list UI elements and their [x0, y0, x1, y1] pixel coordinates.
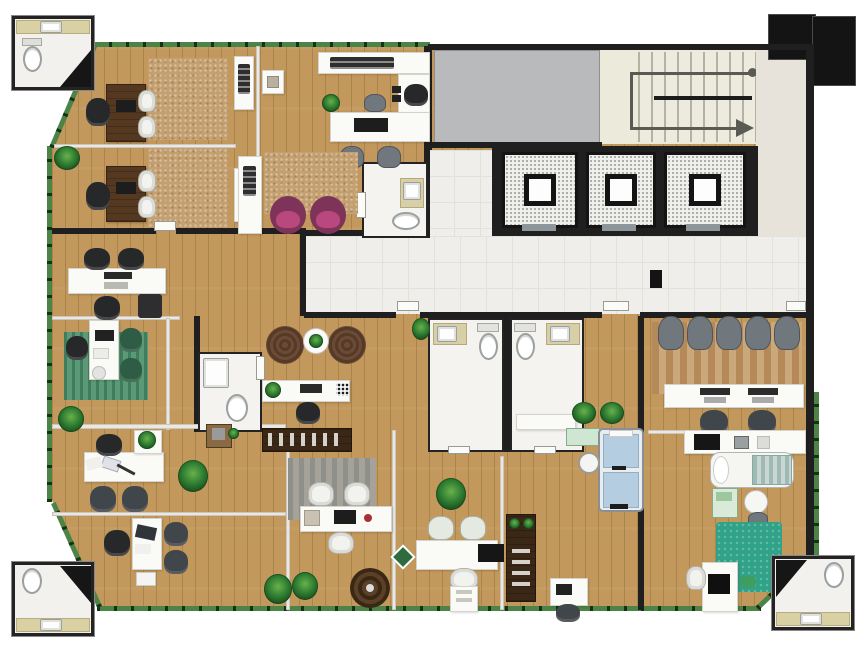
shelf-bm	[304, 510, 320, 526]
exam-recliner-blanket	[752, 455, 792, 485]
waiting-chair-2	[687, 316, 713, 350]
plant-tm-desk	[322, 94, 340, 112]
bathroom-reception-door	[256, 356, 265, 380]
partition-center-room	[500, 456, 504, 610]
chair-ml-3	[94, 296, 120, 320]
side-table-right	[744, 490, 768, 514]
side-table-ml	[138, 294, 162, 318]
chair-ml-2	[118, 248, 144, 270]
wall-corridor-bottom-1	[304, 312, 396, 318]
bathroom-center-right-tank	[514, 323, 536, 332]
monitor-right-exam	[708, 574, 730, 594]
bathroom-center-right-sink	[550, 326, 570, 342]
massage-bed-panel-1	[603, 434, 639, 468]
monitor-right-2	[748, 388, 778, 395]
stair-arrow-line-left	[630, 72, 633, 130]
exam-recliner-headrest	[713, 456, 729, 484]
tray-massage	[566, 428, 600, 446]
chair-mlb-left	[104, 530, 130, 556]
chair-mlb-r2	[164, 550, 188, 574]
office-chair-tl-2	[86, 182, 110, 210]
keyboard-ml-meeting	[104, 282, 128, 289]
plant-mla-corner	[178, 460, 208, 492]
door-corridor-2	[603, 301, 629, 311]
cooktop-right	[694, 434, 720, 450]
bathroom-topmid-sink	[403, 182, 421, 200]
corridor-vertical	[428, 150, 492, 240]
chair-mla-top	[96, 434, 122, 456]
tray-ml-green	[92, 366, 106, 380]
door-corridor-1	[397, 301, 419, 311]
guest-chair-tl-1b	[138, 116, 156, 138]
stair-arrow-line-top	[630, 72, 754, 75]
keyboard-right-2	[752, 397, 774, 403]
massage-bed-handle-1	[612, 466, 626, 470]
chair-reception	[296, 402, 320, 424]
monitor-tl-1	[116, 100, 136, 112]
guest-chair-tl-2b	[138, 196, 156, 218]
floor-plan	[0, 0, 867, 650]
plant-corridor	[412, 318, 430, 340]
waiting-chair-1	[658, 316, 684, 350]
papers-mlb	[135, 544, 151, 554]
corridor-main	[304, 236, 806, 314]
bathroom-reception-toilet	[226, 394, 248, 422]
bathroom-center-right-toilet	[516, 333, 535, 360]
chair-bm2-1	[428, 516, 454, 540]
monitor-bm2	[478, 544, 504, 562]
plant-coffee-table	[309, 334, 323, 348]
plant-reception-shelf	[228, 428, 239, 439]
wall-corridor-cap	[300, 234, 306, 316]
window-bottom	[97, 606, 761, 611]
pod-bl-toilet	[22, 568, 42, 594]
waiting-chair-4	[745, 316, 771, 350]
pod-tl-tank	[22, 38, 42, 46]
drawer-bm2-1	[456, 590, 472, 594]
plant-massage-2	[600, 402, 624, 424]
massage-bed-handle-2	[610, 504, 628, 509]
box-mlb	[136, 572, 156, 586]
chair-ml-green-2	[120, 358, 142, 382]
chair-bm2-2	[460, 516, 486, 540]
bathroom-center-right-door	[534, 446, 556, 454]
chair-br	[556, 604, 580, 622]
rug-office-tl-2	[148, 148, 228, 228]
guest-chair-tm-1	[364, 94, 386, 112]
papers-ml-green	[93, 348, 109, 359]
pod-br-toilet	[824, 562, 844, 588]
utility-room	[434, 50, 600, 144]
plant-bm-1	[264, 574, 292, 604]
wall-core-top	[428, 44, 774, 50]
monitor-ml-green	[95, 330, 114, 341]
armchair-purple-1	[270, 196, 306, 234]
drinking-fountain	[650, 270, 662, 288]
wall-right	[806, 46, 814, 562]
window-right	[814, 392, 819, 560]
plant-ml-window	[58, 406, 84, 432]
pod-tl-sink	[40, 21, 62, 33]
elevator-2	[586, 152, 656, 228]
monitor-bm	[334, 510, 356, 524]
door-tl-suite	[154, 221, 176, 231]
rug-office-tl-1	[148, 58, 228, 140]
cabinet-tl-items	[267, 76, 279, 88]
chair-mlb-r1	[164, 522, 188, 546]
stair-arrow-line-bottom	[630, 127, 738, 130]
monitor-tm	[354, 118, 388, 132]
elevator-3	[664, 152, 746, 228]
window-left	[47, 146, 52, 502]
elevator-1-door	[522, 224, 556, 231]
bathroom-center-left-toilet	[479, 333, 498, 360]
armchair-purple-2	[310, 196, 346, 234]
box-reception-shelf	[212, 428, 225, 440]
massage-bed-panel-2	[603, 472, 639, 508]
decor-green-exam	[740, 576, 756, 588]
desk-pad-tm-2	[392, 95, 401, 102]
pouf-1	[266, 326, 304, 364]
waiting-chair-5	[774, 316, 800, 350]
shaft-block-b	[812, 16, 856, 86]
massage-bed-pillow	[609, 430, 633, 437]
pod-br-sink	[800, 613, 822, 625]
chair-ml-1	[84, 248, 110, 270]
waiting-chair-3	[716, 316, 742, 350]
stair-divider	[654, 96, 752, 100]
chair-bm-2	[344, 482, 370, 506]
plant-br-1	[509, 518, 520, 529]
shelf-tm-items	[330, 57, 394, 69]
bathroom-center-left-sink	[437, 326, 457, 342]
elevator-1	[502, 152, 578, 228]
monitor-reception	[300, 384, 322, 393]
device-reception	[336, 383, 349, 396]
chair-right-exam	[686, 566, 706, 590]
plant-bm2	[436, 478, 466, 510]
plant-tl-window	[54, 146, 80, 170]
printer-tm	[243, 166, 256, 196]
round-rug-bm	[350, 568, 390, 608]
stair-landing	[756, 50, 808, 236]
monitor-tl-2	[116, 182, 136, 194]
monitor-ml-meeting	[104, 272, 132, 279]
monitor-right-1	[700, 388, 730, 395]
elevator-2-door	[602, 224, 636, 231]
bathroom-center-left-door	[448, 446, 470, 454]
door-corridor-3	[786, 301, 806, 311]
wall-suites-left-a	[52, 228, 156, 234]
plant-br-2	[523, 518, 534, 529]
drawer-bm2-2	[456, 598, 472, 602]
window-top	[92, 42, 430, 47]
medical-cart-items	[716, 492, 732, 501]
printer-tl-1	[238, 64, 250, 94]
sink-right	[734, 436, 749, 449]
decor-bm	[364, 514, 372, 522]
keyboard-right-1	[704, 397, 726, 403]
pod-tl-toilet	[23, 46, 42, 72]
bathroom-center-left-tank	[477, 323, 499, 332]
chair-mla-b1	[90, 486, 116, 512]
kitchenette-appliances	[268, 433, 340, 446]
partition-ml-vertical	[166, 318, 170, 430]
pod-bl-sink	[40, 619, 62, 631]
pouf-2	[328, 326, 366, 364]
chair-bm-3	[328, 532, 354, 554]
plant-reception-desk	[265, 382, 281, 398]
guest-chair-tl-1a	[138, 90, 156, 112]
chair-ml-green-1	[120, 328, 142, 352]
elevator-3-door	[686, 224, 720, 231]
guest-chair-tl-2a	[138, 170, 156, 192]
exec-chair-tm	[404, 84, 428, 106]
partition-ml-3	[52, 512, 286, 516]
chair-mla-b2	[122, 486, 148, 512]
plant-massage-1	[572, 402, 596, 424]
bathroom-topmid-toilet	[392, 212, 420, 230]
workstation-counter-right	[664, 384, 804, 408]
stool-massage	[578, 452, 600, 474]
bathroom-reception-sink	[203, 358, 229, 388]
appliance-right	[757, 436, 770, 449]
plant-mla-desk	[138, 431, 156, 449]
partition-bm-right	[392, 430, 396, 610]
chair-ml-green-3	[66, 336, 88, 360]
plant-bm-2	[292, 572, 318, 600]
counter-br-items	[512, 542, 530, 586]
monitor-br	[556, 584, 572, 595]
office-chair-tl-1	[86, 98, 110, 126]
desk-pad-tm-1	[392, 86, 401, 93]
guest-chair-tm-3	[377, 146, 401, 168]
chair-bm-1	[308, 482, 334, 506]
